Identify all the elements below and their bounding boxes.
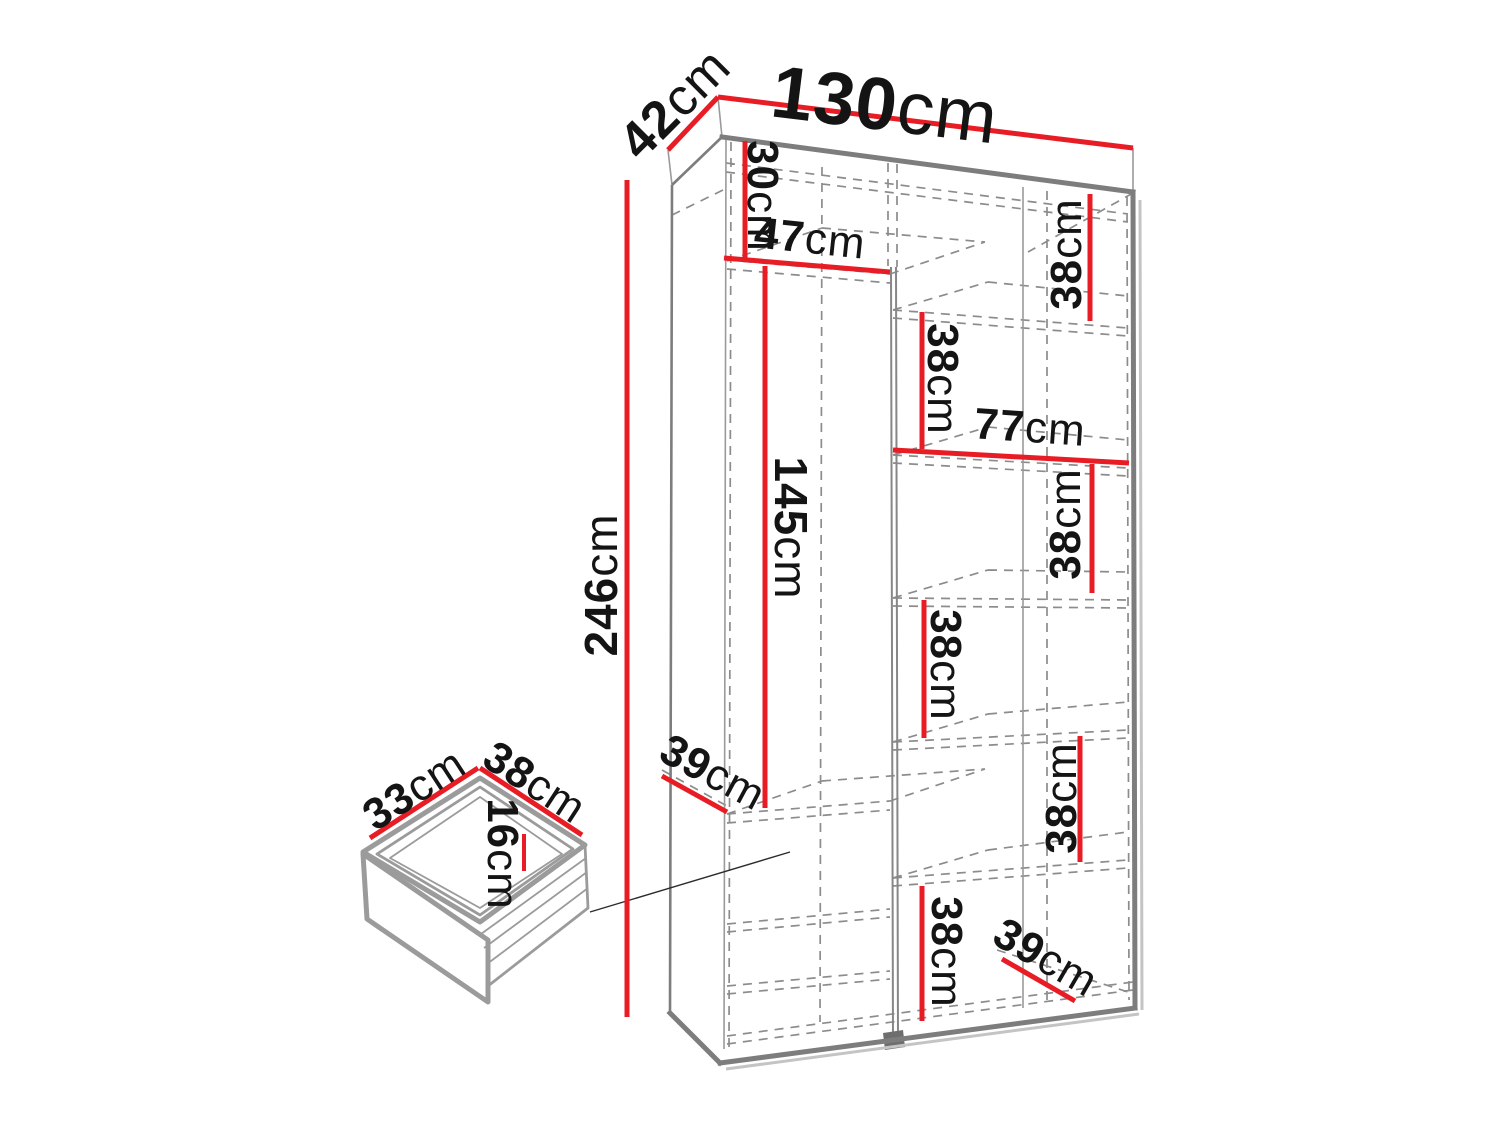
label-drawer-side-depth: 33cm [354, 738, 474, 840]
left-side-strip [670, 137, 722, 1063]
label-gap-middle: 38cm [922, 609, 971, 721]
label-gap-upper-mid: 38cm [919, 323, 968, 435]
label-drawer-height: 16cm [479, 798, 528, 910]
label-total-height: 246cm [575, 513, 627, 656]
wardrobe-dimension-diagram: 130cm 42cm 246cm 30cm 47cm 145cm 38cm 38… [0, 0, 1500, 1125]
drawer-front-panel [363, 854, 488, 1002]
label-gap-top-right: 38cm [1042, 198, 1091, 310]
label-gap-bottom: 38cm [923, 896, 972, 1008]
label-right-section-width: 77cm [973, 399, 1088, 456]
label-gap-lower-right: 38cm [1037, 742, 1086, 854]
label-hanging-height: 145cm [765, 456, 817, 599]
label-gap-upper-right: 38cm [1041, 468, 1090, 580]
diagram-canvas: 130cm 42cm 246cm 30cm 47cm 145cm 38cm 38… [0, 0, 1500, 1125]
